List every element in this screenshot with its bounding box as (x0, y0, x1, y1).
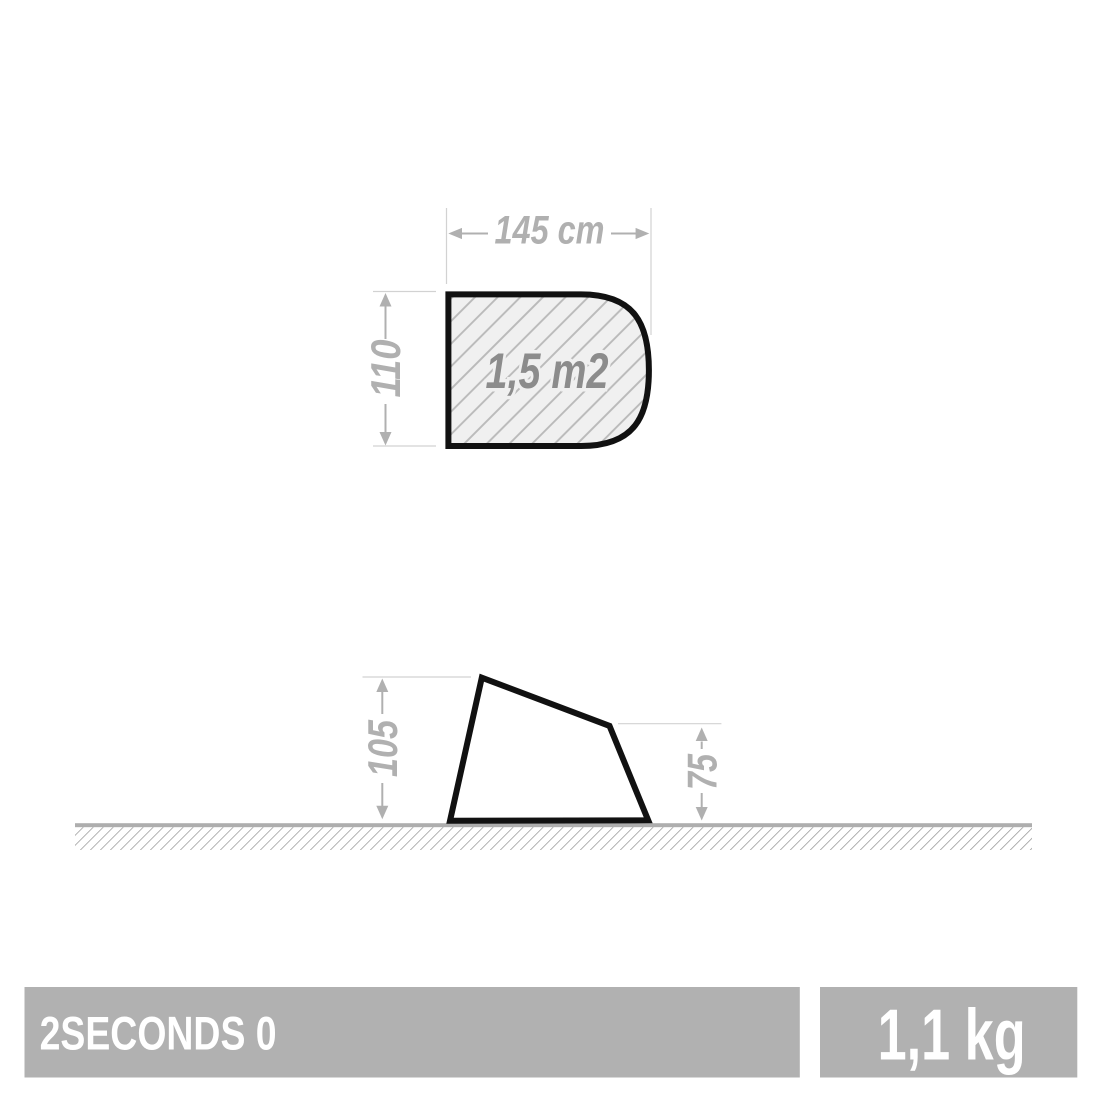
svg-text:75: 75 (678, 754, 725, 790)
svg-text:110: 110 (362, 340, 409, 398)
svg-text:105: 105 (359, 719, 406, 777)
svg-text:1,5 m2: 1,5 m2 (486, 342, 609, 399)
svg-text:1,1 kg: 1,1 kg (878, 994, 1026, 1075)
svg-text:145 cm: 145 cm (495, 209, 605, 253)
svg-text:2SECONDS 0: 2SECONDS 0 (40, 1008, 277, 1061)
